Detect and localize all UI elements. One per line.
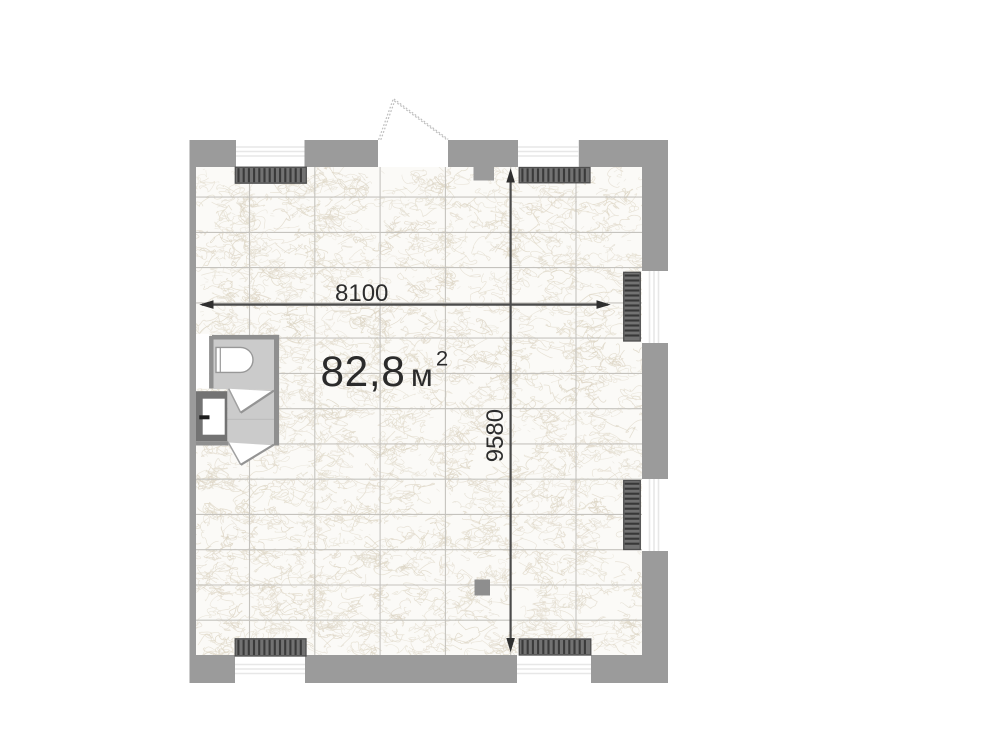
svg-text:8100: 8100: [335, 280, 388, 307]
svg-text:9580: 9580: [482, 409, 509, 462]
